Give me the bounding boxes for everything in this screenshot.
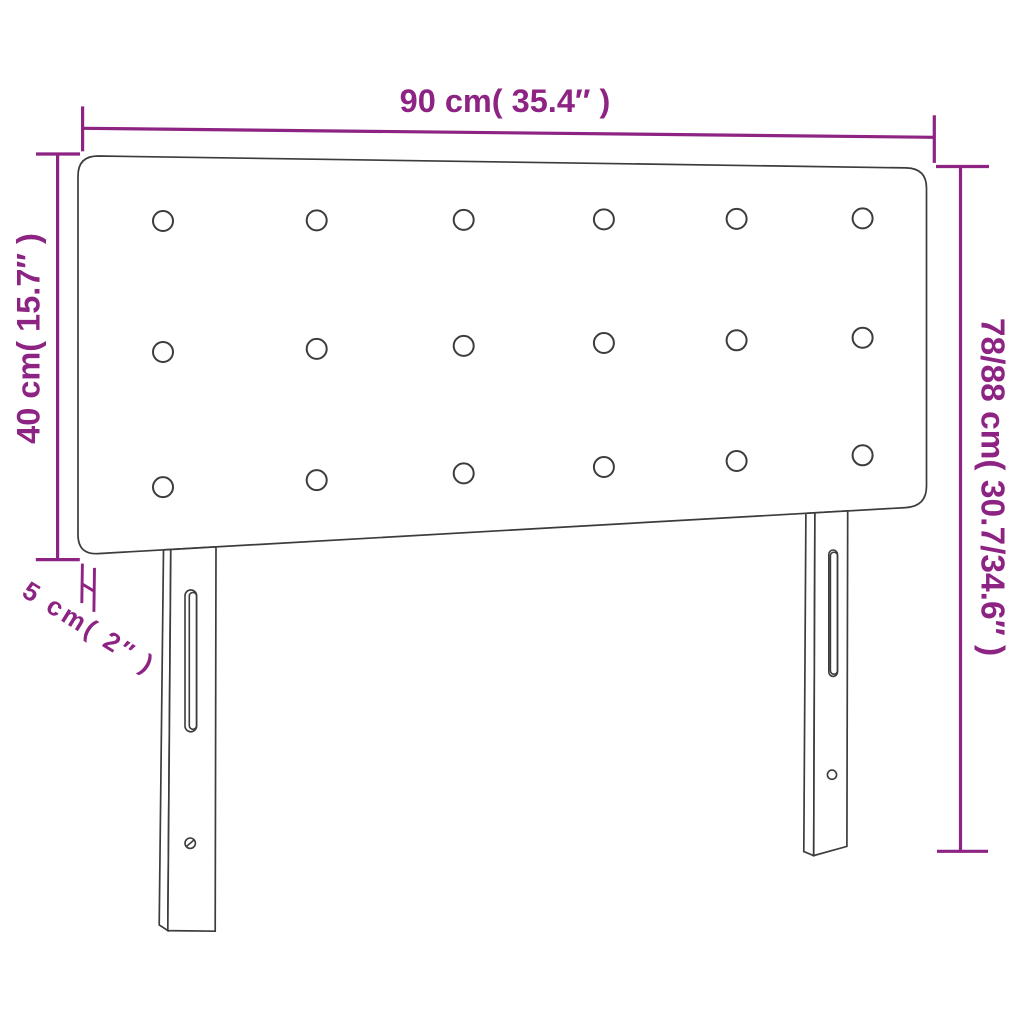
svg-text:90 cm( 35.4″ ): 90 cm( 35.4″ ) [400,83,611,119]
svg-text:40 cm( 15.7″ ): 40 cm( 15.7″ ) [11,233,47,444]
svg-text:5 cm( 2″ ): 5 cm( 2″ ) [17,575,161,680]
svg-text:78/88 cm( 30.7/34.6″ ): 78/88 cm( 30.7/34.6″ ) [974,318,1011,656]
